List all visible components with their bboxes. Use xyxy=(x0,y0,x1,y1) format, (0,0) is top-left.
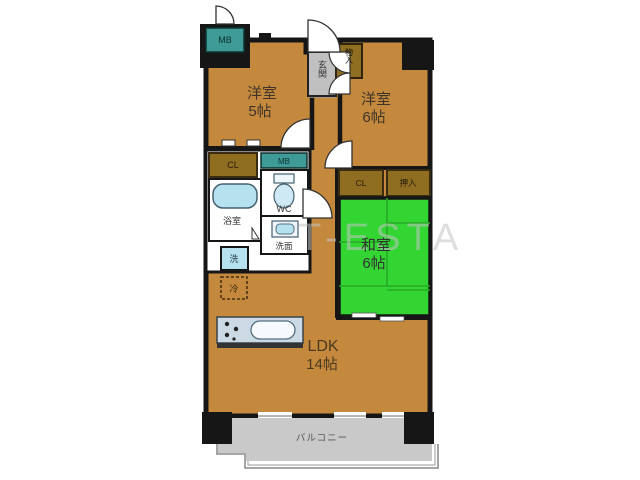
floorplan-svg: T-ESTA 洋室 5帖 洋室 6帖 和室 6帖 LDK 14帖 バルコニー M… xyxy=(0,0,640,480)
sliding-door-mark xyxy=(352,313,376,318)
kitchen-counter-edge xyxy=(217,343,303,348)
window-mark xyxy=(259,33,271,40)
sliding-door-mark xyxy=(380,317,404,322)
meter-box-door-arc xyxy=(216,6,234,24)
ldk-room-label: LDK xyxy=(307,338,338,355)
pillar-bottom-right xyxy=(404,412,434,444)
pillar-top-right xyxy=(402,40,434,70)
balcony-label: バルコニー xyxy=(296,433,348,444)
bathtub-icon xyxy=(213,184,257,208)
entrance-door-arc xyxy=(308,20,340,52)
toilet-tank-icon xyxy=(274,174,294,183)
pillar-bottom-left xyxy=(202,412,232,444)
west5-room-label: 洋室 xyxy=(247,85,277,102)
washitsu-room-label: 和室 xyxy=(361,237,391,254)
meter-box-top-label: MB xyxy=(218,35,232,45)
washer-label: 洗 xyxy=(229,253,238,264)
west5-size-label: 5帖 xyxy=(248,103,271,120)
toilet-label: WC xyxy=(277,204,292,214)
meter-box-mid-label: MB xyxy=(278,157,290,166)
closet-washitsu-label: CL xyxy=(356,178,367,188)
stove-burner-icon xyxy=(225,322,229,326)
sink-bowl-icon xyxy=(276,224,294,234)
storage-label: 物入 xyxy=(345,47,354,64)
floorplan-canvas: T-ESTA 洋室 5帖 洋室 6帖 和室 6帖 LDK 14帖 バルコニー M… xyxy=(0,0,640,480)
oshiire-label: 押入 xyxy=(399,178,417,188)
stove-burner-icon xyxy=(234,327,238,331)
entrance-label: 玄関 xyxy=(317,59,327,79)
west6-size-label: 6帖 xyxy=(362,109,385,126)
sliding-door-mark xyxy=(247,140,260,146)
closet-west5-label: CL xyxy=(227,160,239,170)
washitsu-size-label: 6帖 xyxy=(362,255,385,272)
bathroom-label: 浴室 xyxy=(223,215,241,226)
ldk-size-label: 14帖 xyxy=(306,356,338,373)
washroom-label: 洗面 xyxy=(275,241,293,251)
stove-burner-icon xyxy=(225,333,229,337)
fridge-label: 冷 xyxy=(229,283,238,294)
west6-room-label: 洋室 xyxy=(361,91,391,108)
kitchen-sink-icon xyxy=(251,321,295,339)
stove-burner-icon xyxy=(232,337,235,340)
sliding-door-mark xyxy=(222,140,235,146)
